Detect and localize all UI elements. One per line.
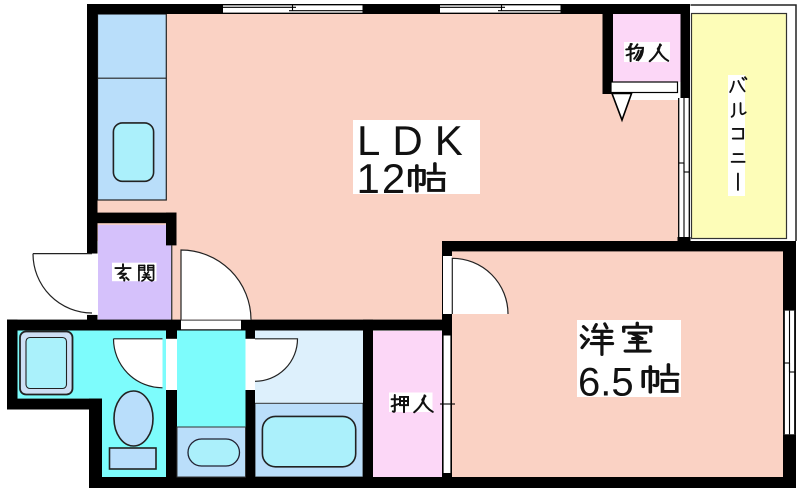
svg-text:12: 12 <box>357 155 408 202</box>
svg-text:6.5: 6.5 <box>578 361 634 405</box>
